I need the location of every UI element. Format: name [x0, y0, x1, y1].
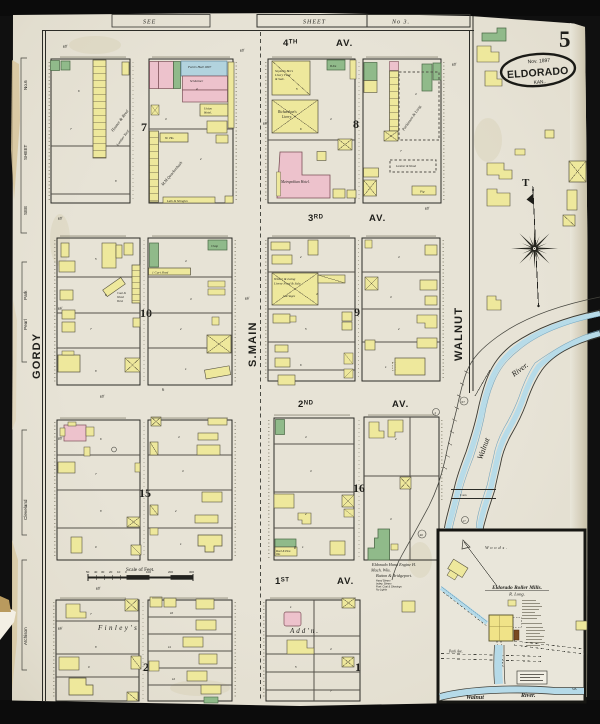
svg-text:Chop: Chop [211, 244, 218, 248]
svg-text:GORDY: GORDY [31, 333, 43, 379]
svg-text:W. Ho.: W. Ho. [165, 136, 174, 140]
svg-text:2: 2 [199, 157, 202, 161]
svg-text:7: 7 [141, 120, 147, 134]
svg-text:15: 15 [139, 486, 151, 500]
svg-text:R. Long.: R. Long. [508, 592, 525, 597]
svg-text:S.B.: S.B. [572, 687, 577, 691]
svg-text:Carriages: Carriages [283, 294, 296, 298]
svg-text:Woods.: Woods. [485, 545, 509, 550]
svg-text:40: 40 [94, 570, 98, 574]
svg-text:Eldorado Hand Engine H.: Eldorado Hand Engine H. [371, 562, 416, 567]
svg-text:Livery.: Livery. [281, 115, 292, 119]
svg-text:Cleveland: Cleveland [23, 499, 28, 520]
svg-text:2: 2 [397, 327, 400, 331]
svg-text:1 Cart Shed: 1 Cart Shed [152, 271, 169, 275]
svg-text:Hotel.: Hotel. [203, 111, 212, 115]
svg-text:SHEET: SHEET [303, 20, 326, 26]
svg-text:Winter & Laing: Winter & Laing [274, 277, 296, 281]
svg-text:17: 17 [463, 519, 467, 523]
svg-text:12: 12 [172, 677, 176, 681]
svg-text:Pig: Pig [419, 190, 425, 194]
svg-text:10: 10 [170, 611, 174, 615]
svg-text:River.: River. [520, 693, 536, 699]
svg-text:1: 1 [355, 660, 361, 674]
svg-text:AV.: AV. [337, 576, 354, 587]
svg-text:Finley's: Finley's [97, 624, 139, 632]
svg-text:KAN..: KAN.. [533, 79, 546, 86]
svg-text:SEE: SEE [143, 20, 156, 26]
svg-text:Livery Feed & Sale: Livery Feed & Sale [273, 282, 301, 286]
svg-text:50: 50 [86, 570, 90, 574]
svg-text:2: 2 [304, 512, 307, 516]
svg-text:Conn: Conn [460, 493, 467, 497]
svg-text:WALNUT: WALNUT [453, 307, 465, 361]
svg-text:Lumber & Wood: Lumber & Wood [395, 164, 416, 168]
svg-text:No Lights: No Lights [376, 588, 388, 592]
svg-text:T: T [522, 177, 530, 189]
svg-text:8: 8 [353, 117, 359, 131]
svg-text:Farris Hall 1897: Farris Hall 1897 [187, 65, 211, 69]
svg-text:Pearl: Pearl [23, 319, 28, 330]
svg-text:Park Ave.: Park Ave. [448, 650, 463, 654]
svg-text:& Sale.: & Sale. [275, 77, 285, 81]
svg-text:Yard.: Yard. [117, 299, 123, 303]
svg-text:Park: Park [23, 290, 28, 300]
svg-text:SEE: SEE [23, 206, 28, 215]
svg-text:30: 30 [101, 570, 105, 574]
svg-text:Wks: Wks [276, 553, 280, 556]
svg-text:11: 11 [168, 645, 171, 649]
svg-text:Eldorado Roller Mills.: Eldorado Roller Mills. [491, 585, 542, 591]
svg-text:Atchison: Atchison [23, 627, 28, 645]
svg-text:No 3.: No 3. [391, 20, 410, 26]
svg-text:Schluttner: Schluttner [190, 79, 204, 83]
svg-text:AV.: AV. [369, 213, 386, 224]
svg-text:200: 200 [168, 570, 173, 574]
svg-text:Lath & Shingles: Lath & Shingles [166, 199, 188, 203]
svg-text:20: 20 [109, 570, 113, 574]
svg-text:Add'n.: Add'n. [289, 627, 320, 635]
svg-text:5: 5 [559, 27, 571, 52]
svg-text:AV.: AV. [336, 38, 353, 49]
svg-text:No.6: No.6 [23, 80, 28, 90]
svg-text:10: 10 [117, 570, 121, 574]
svg-text:AV.: AV. [392, 399, 409, 410]
svg-text:2: 2 [394, 437, 397, 441]
svg-text:Walnut: Walnut [466, 695, 484, 701]
svg-text:2: 2 [179, 327, 182, 331]
svg-text:40: 40 [420, 533, 424, 537]
svg-text:SHEET: SHEET [23, 144, 28, 160]
svg-text:Richardson's: Richardson's [277, 110, 297, 114]
svg-text:S.MAIN: S.MAIN [247, 321, 259, 367]
svg-text:300: 300 [189, 570, 194, 574]
svg-text:Metropolitan Hotel.: Metropolitan Hotel. [280, 180, 310, 184]
svg-text:B.Sm: B.Sm [330, 64, 337, 68]
svg-text:2: 2 [299, 255, 302, 259]
svg-text:67: 67 [462, 400, 466, 404]
svg-text:2: 2 [174, 509, 177, 513]
svg-text:100: 100 [146, 570, 151, 574]
svg-text:Mach. Wks.: Mach. Wks. [370, 568, 391, 573]
